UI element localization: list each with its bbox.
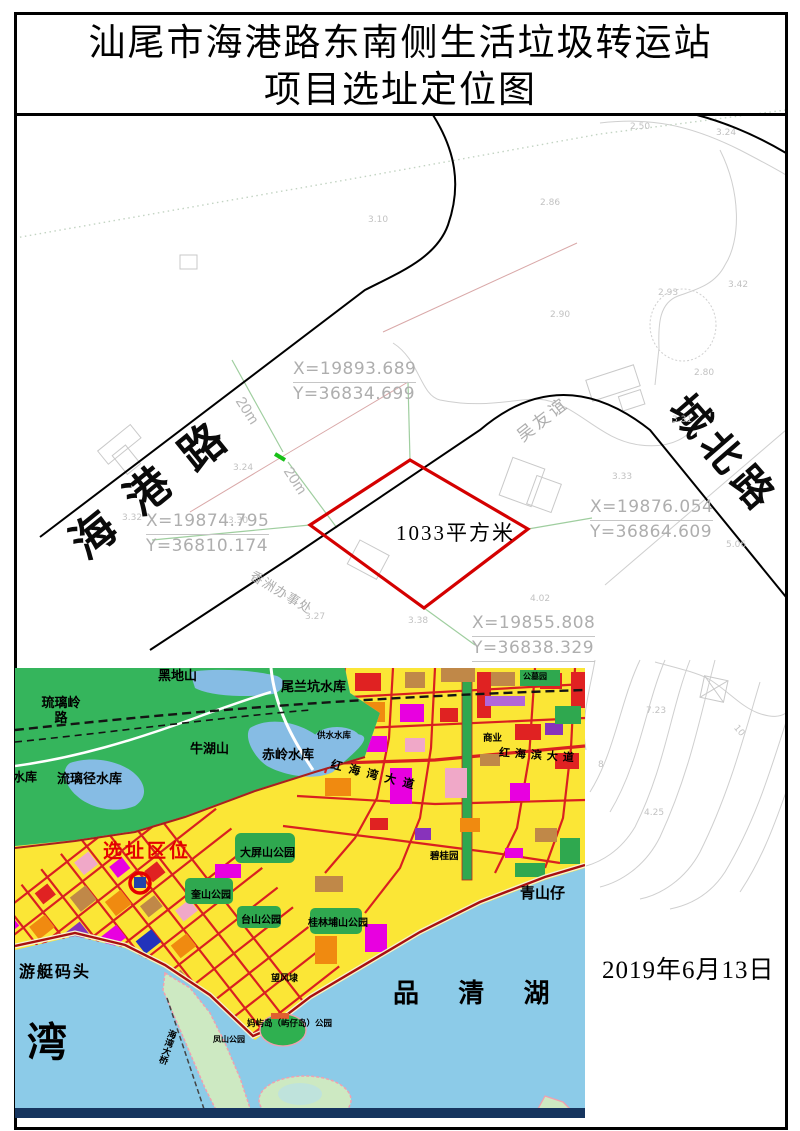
map-label-kuishan: 奎山公园 <box>191 886 231 901</box>
map-label-chiling: 赤岭水库 <box>262 744 314 763</box>
spot-elevation: 3.31 <box>672 415 692 425</box>
coord-y: Y=36834.699 <box>293 383 416 406</box>
spot-elevation: 3.33 <box>612 472 632 482</box>
spot-elevation: 2.80 <box>694 368 714 378</box>
title-line2: 项目选址定位图 <box>15 67 786 114</box>
map-label-liulijing: 流璃径水库 <box>57 768 122 787</box>
spot-elevation: 4.25 <box>644 808 664 818</box>
map-label-heidishan: 黑地山 <box>158 668 197 684</box>
map-label-taishan: 台山公园 <box>241 911 281 926</box>
coord-block-4: X=19855.808 Y=36838.329 <box>472 612 595 662</box>
map-label-youtingmatou: 游艇码头 <box>19 958 91 982</box>
page: 汕尾市海港路东南侧生活垃圾转运站 项目选址定位图 海港路 城北路 吴友谊 香洲办… <box>0 0 800 1131</box>
map-label-wangfengdai: 望风埭 <box>271 971 298 984</box>
page-title: 汕尾市海港路东南侧生活垃圾转运站 项目选址定位图 <box>15 20 786 115</box>
coord-block-1: X=19893.689 Y=36834.699 <box>293 358 416 406</box>
coord-x: X=19893.689 <box>293 358 416 383</box>
coord-y: Y=36810.174 <box>146 535 269 558</box>
date-label: 2019年6月13日 <box>602 950 775 986</box>
coord-x: X=19876.054 <box>590 496 713 521</box>
map-label-biguiyuan: 碧桂园 <box>430 848 459 862</box>
spot-elevation: 2.86 <box>540 198 560 208</box>
map-label-yuzaidao: 妈屿岛（屿仔岛）公园 <box>247 1017 332 1029</box>
parcel-area-label: 1033平方米 <box>396 517 515 547</box>
coord-y: Y=36864.609 <box>590 521 713 544</box>
spot-elevation: 3.30 <box>228 516 248 526</box>
map-label-pinqinghu: 品 清 湖 <box>393 973 565 1010</box>
spot-elevation: 2.93 <box>658 288 678 298</box>
spot-elevation: 8 <box>598 760 604 770</box>
spot-elevation: 4.02 <box>530 594 550 604</box>
map-label-shuiku: 水库 <box>15 768 37 785</box>
coord-block-2: X=19874.795 Y=36810.174 <box>146 510 269 558</box>
spot-elevation: 2.50 <box>630 122 650 132</box>
map-label-gongmu: 公墓园 <box>523 671 547 682</box>
map-label-dapingshan: 大屏山公园 <box>240 844 295 860</box>
map-label-gongshui: 供水水库 <box>317 729 351 741</box>
spot-elevation: 7.23 <box>646 706 666 716</box>
map-label-weilankeng: 尾兰坑水库 <box>281 676 346 695</box>
spot-elevation: 3.27 <box>305 612 325 622</box>
site-block <box>134 877 146 888</box>
spot-elevation: 3.32 <box>122 513 142 523</box>
coord-x: X=19855.808 <box>472 612 595 637</box>
map-label-fengshan: 凤山公园 <box>213 1034 245 1045</box>
map-label-niuhushan: 牛湖山 <box>190 738 229 757</box>
coord-y: Y=36838.329 <box>472 637 595 662</box>
spot-elevation: 3.42 <box>728 280 748 290</box>
map-label-qingshanzai: 青山仔 <box>520 882 565 903</box>
spot-elevation: 5.06 <box>726 540 746 550</box>
spot-elevation: 2.90 <box>550 310 570 320</box>
map-label-shangye: 商业 <box>483 730 502 744</box>
map-bottom-strip <box>15 1108 585 1118</box>
map-site-marker-label: 选址区位 <box>103 836 191 863</box>
spot-elevation: 3.38 <box>408 616 428 626</box>
coord-block-3: X=19876.054 Y=36864.609 <box>590 496 713 544</box>
map-label-wan: 湾 <box>27 1010 67 1068</box>
spot-elevation: 3.24 <box>233 463 253 473</box>
spot-elevation: 3.10 <box>368 215 388 225</box>
map-label-guilinpu: 桂林埔山公园 <box>308 914 368 929</box>
coord-x: X=19874.795 <box>146 510 269 535</box>
spot-elevation: 3.24 <box>716 128 736 138</box>
inset-map: 黑地山 尾兰坑水库 琉璃岭路 牛湖山 赤岭水库 供水水库 流璃径水库 水库 公墓… <box>15 668 585 1118</box>
title-line1: 汕尾市海港路东南侧生活垃圾转运站 <box>15 20 786 67</box>
map-label-liuliling: 琉璃岭路 <box>37 696 85 726</box>
